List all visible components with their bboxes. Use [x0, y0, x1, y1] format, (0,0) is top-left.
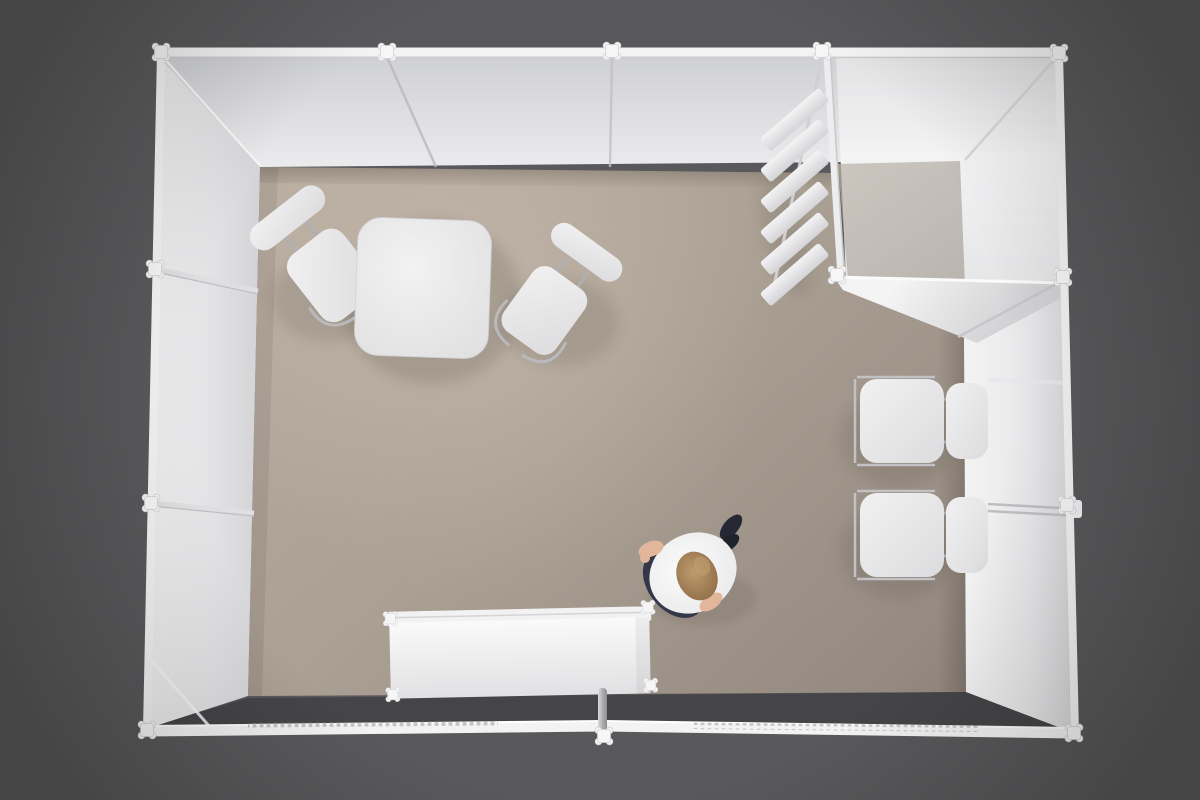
- booth-render: [0, 0, 1200, 800]
- vignette: [0, 0, 1200, 800]
- render-viewport: [0, 0, 1200, 800]
